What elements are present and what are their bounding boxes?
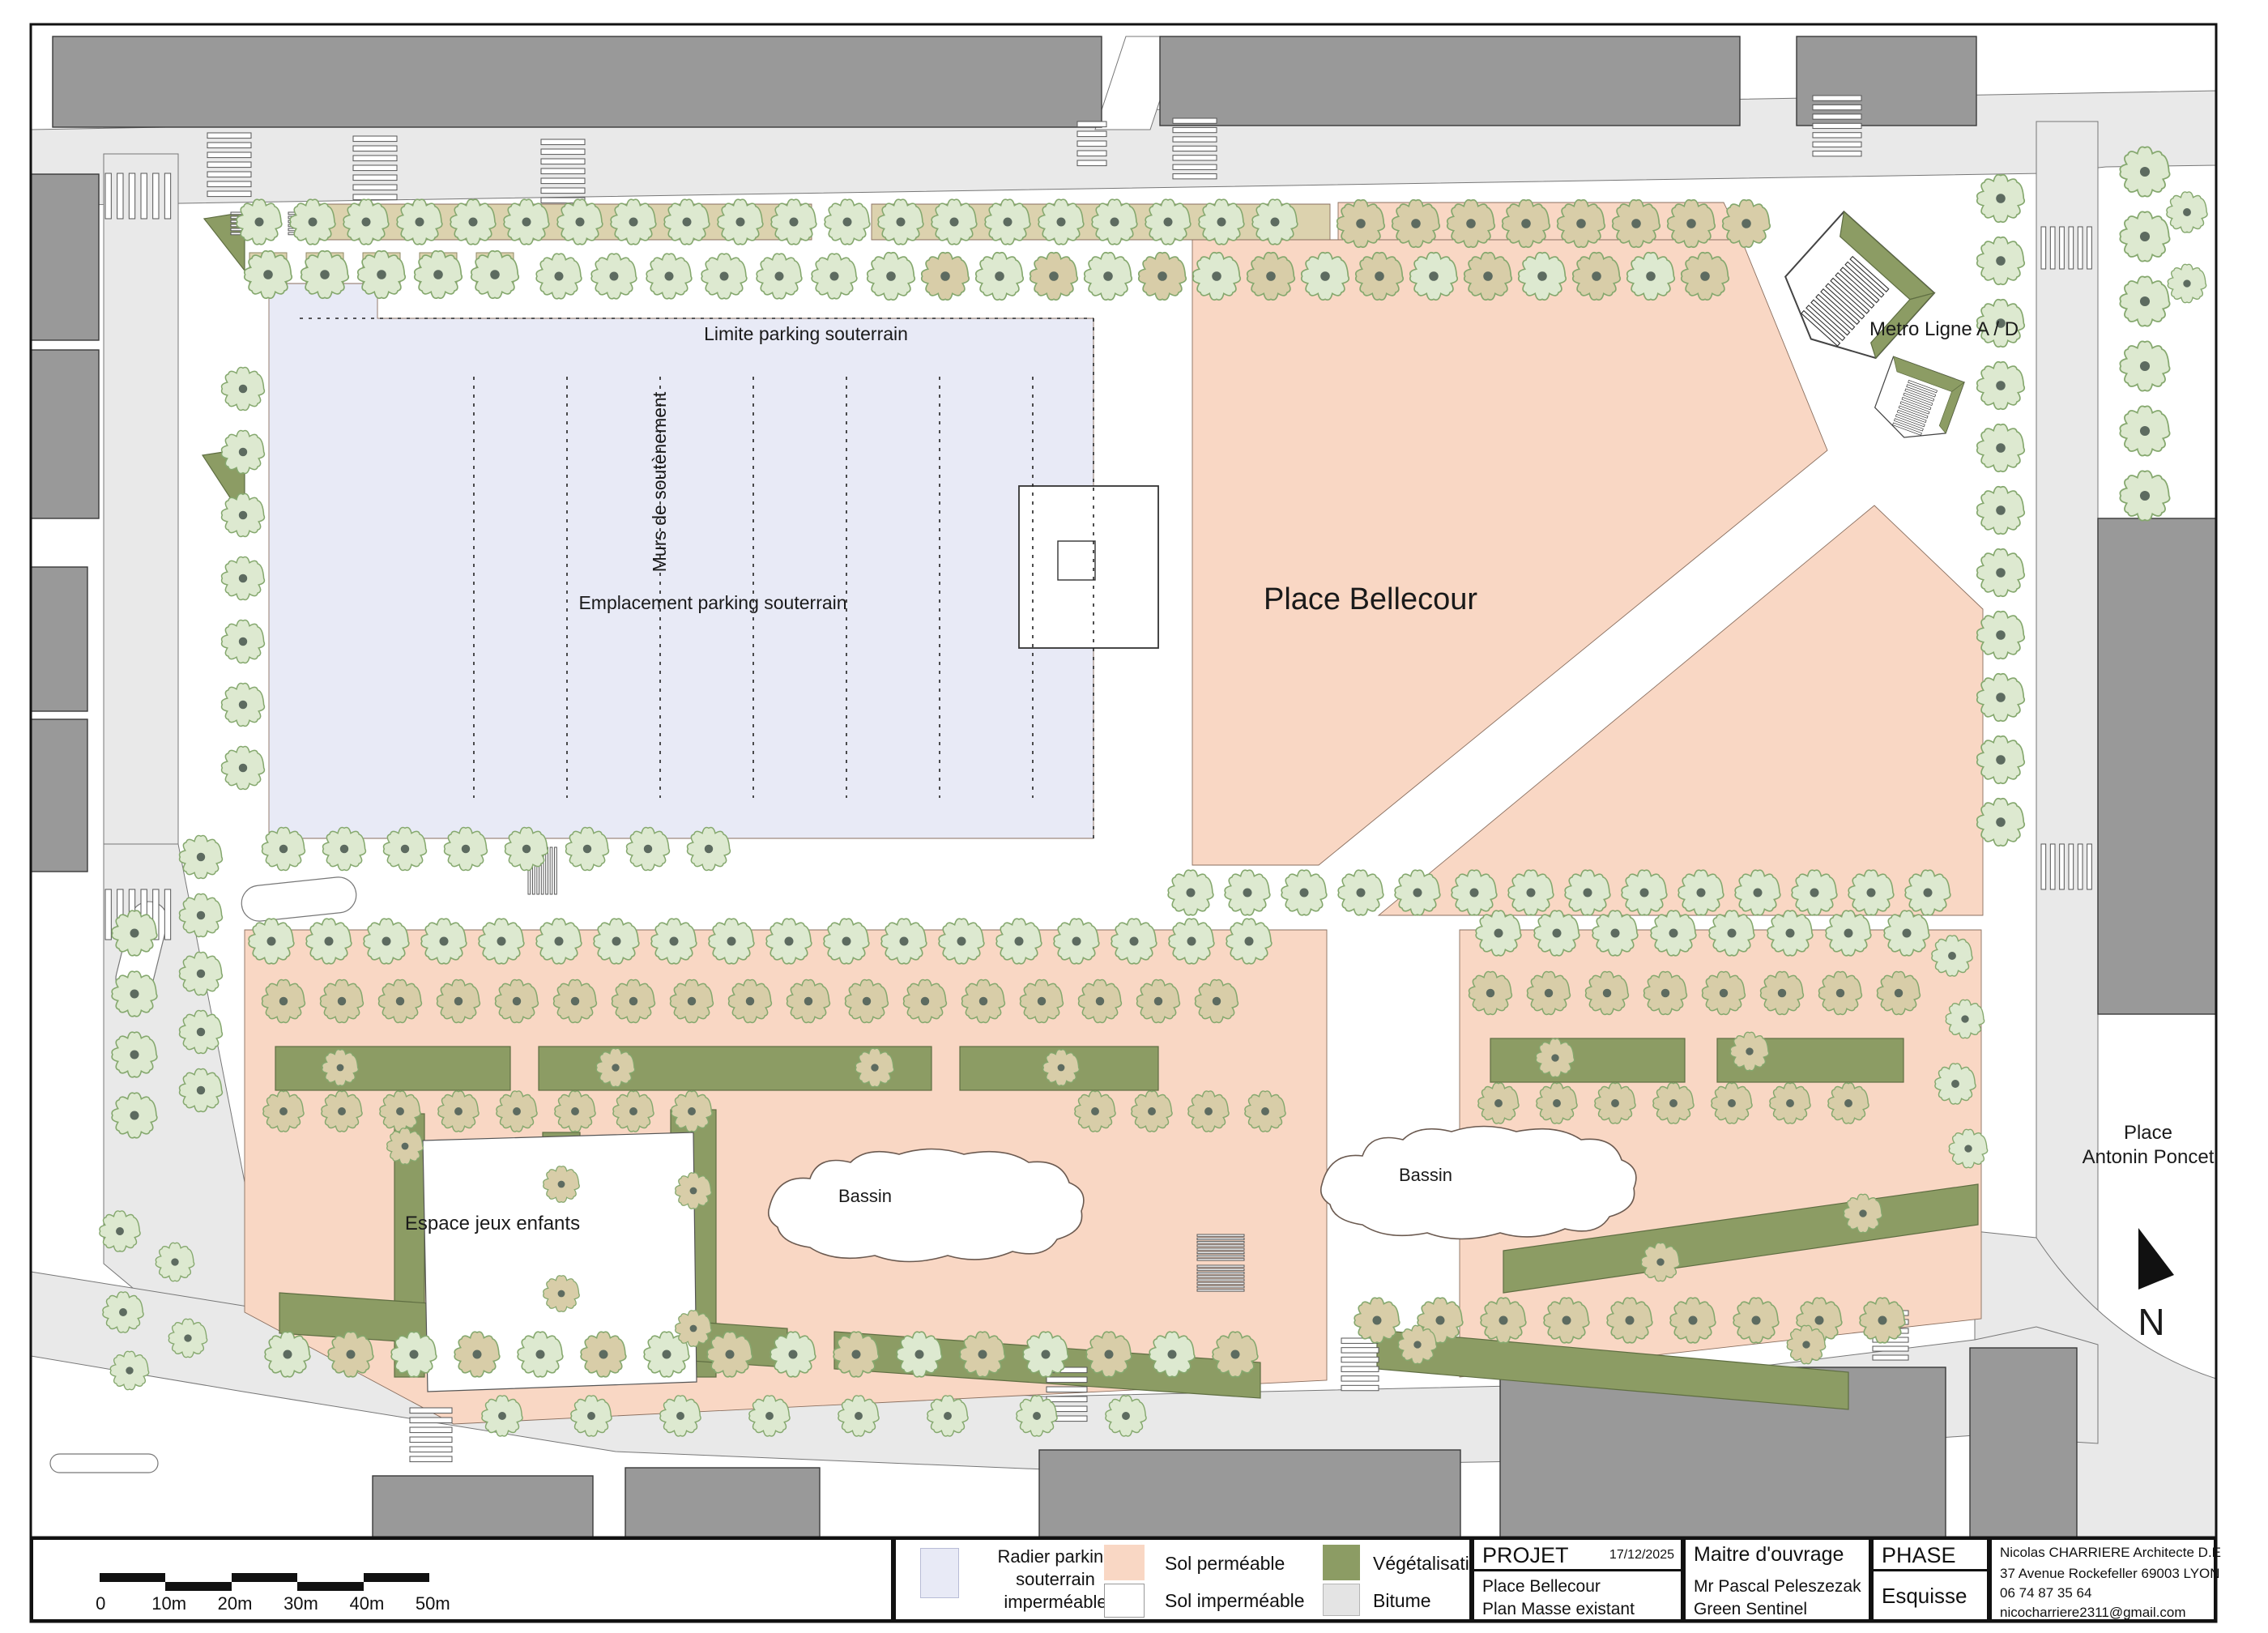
tree-green-icon: [939, 919, 984, 964]
tree-tan-icon: [1544, 1298, 1589, 1343]
maitre-line1: Mr Pascal Peleszezak: [1694, 1577, 1861, 1597]
tree-green-icon: [482, 1396, 522, 1436]
tree-tan-icon: [1139, 253, 1186, 300]
tree-tan-icon: [328, 1332, 373, 1377]
tree-green-icon: [222, 557, 265, 600]
tree-tan-icon: [1733, 1298, 1779, 1343]
tree-tan-icon: [1644, 972, 1687, 1015]
tree-green-icon: [156, 1243, 194, 1281]
projet-header: PROJET: [1482, 1543, 1569, 1568]
tree-green-icon: [384, 828, 427, 871]
tree-tan-icon: [1573, 253, 1620, 300]
tree-green-icon: [1023, 1332, 1068, 1377]
tree-green-icon: [397, 199, 442, 245]
tree-green-icon: [701, 254, 747, 299]
tree-tan-icon: [321, 980, 364, 1023]
label-limite-parking: Limite parking souterrain: [704, 323, 908, 344]
building: [1160, 36, 1740, 126]
surface-lavender: [269, 284, 1093, 838]
tree-tan-icon: [1356, 253, 1403, 300]
tree-green-icon: [2167, 192, 2207, 232]
building: [1039, 1450, 1460, 1537]
tree-green-icon: [222, 684, 265, 727]
tree-tan-icon: [555, 1091, 595, 1132]
crosswalk-hatch: [541, 139, 585, 203]
tree-green-icon: [749, 1396, 790, 1436]
plan-sheet: Limite parking souterrainMurs de soutène…: [0, 0, 2268, 1633]
tree-green-icon: [1017, 1396, 1057, 1436]
building: [1797, 36, 1976, 126]
tree-green-icon: [222, 747, 265, 790]
titleblock-architect: Nicolas CHARRIERE Architecte D.E 37 Aven…: [1989, 1537, 2216, 1622]
tree-green-icon: [1977, 362, 2024, 409]
traffic-island: [50, 1454, 158, 1473]
tree-tan-icon: [855, 1048, 893, 1086]
tree-green-icon: [505, 828, 548, 871]
scalebar-label: 20m: [218, 1593, 253, 1614]
tree-green-icon: [1592, 910, 1638, 956]
architect-line1: Nicolas CHARRIERE Architecte D.E: [2000, 1545, 2221, 1561]
tree-green-icon: [110, 1351, 148, 1389]
maitre-line2: Green Sentinel: [1694, 1600, 1807, 1619]
maitre-header: Maitre d'ouvrage: [1694, 1543, 1844, 1567]
tree-tan-icon: [437, 980, 480, 1023]
tree-tan-icon: [497, 1091, 537, 1132]
tree-green-icon: [364, 919, 409, 964]
tree-tan-icon: [1761, 972, 1804, 1015]
tree-green-icon: [1054, 919, 1099, 964]
building: [1970, 1348, 2077, 1537]
building: [53, 36, 1102, 127]
tree-green-icon: [536, 919, 582, 964]
crosswalk-hatch: [1813, 96, 1861, 156]
tree-green-icon: [2168, 264, 2206, 302]
tree-tan-icon: [960, 1332, 1005, 1377]
legend-swatch-sol-permeable: [1104, 1545, 1145, 1580]
building: [625, 1468, 820, 1537]
tree-tan-icon: [263, 1091, 304, 1132]
hedge-strip: [1490, 1038, 1685, 1082]
tree-green-icon: [2120, 276, 2169, 326]
tree-green-icon: [1410, 253, 1457, 300]
tree-tan-icon: [262, 980, 305, 1023]
legend-label-sol-impermeable: Sol imperméable: [1165, 1590, 1305, 1612]
tree-tan-icon: [544, 1276, 580, 1312]
tree-tan-icon: [1586, 972, 1629, 1015]
label-espace-jeux: Espace jeux enfants: [405, 1213, 580, 1234]
tree-green-icon: [1519, 253, 1566, 300]
tree-green-icon: [1302, 253, 1349, 300]
central-structure: [1019, 486, 1158, 648]
statue-base: [1058, 541, 1095, 580]
tree-green-icon: [1977, 487, 2024, 534]
tree-tan-icon: [1703, 972, 1746, 1015]
tree-tan-icon: [787, 980, 830, 1023]
tree-tan-icon: [1030, 253, 1077, 300]
label-emplacement-parking: Emplacement parking souterrain: [578, 592, 846, 613]
scalebar-segment: [297, 1582, 363, 1591]
tree-green-icon: [1508, 870, 1554, 915]
tree-green-icon: [566, 828, 609, 871]
tree-green-icon: [1826, 910, 1871, 956]
tree-green-icon: [1651, 910, 1696, 956]
tree-green-icon: [222, 368, 265, 411]
tree-tan-icon: [1478, 1083, 1519, 1123]
tree-tan-icon: [1247, 253, 1294, 300]
scalebar-segment: [232, 1573, 297, 1582]
tree-green-icon: [222, 620, 265, 663]
basin: [1321, 1127, 1636, 1239]
tree-green-icon: [1092, 199, 1137, 245]
tree-green-icon: [1149, 1332, 1195, 1377]
tree-tan-icon: [380, 1091, 420, 1132]
tree-green-icon: [1977, 736, 2024, 783]
tree-green-icon: [180, 1069, 223, 1112]
tree-tan-icon: [613, 1091, 654, 1132]
tree-tan-icon: [1021, 980, 1064, 1023]
tree-green-icon: [112, 910, 157, 956]
tree-tan-icon: [581, 1332, 626, 1377]
tree-tan-icon: [1213, 1332, 1258, 1377]
tree-green-icon: [343, 199, 389, 245]
tree-green-icon: [112, 971, 157, 1017]
tree-green-icon: [536, 254, 582, 299]
crosswalk-hatch: [207, 133, 251, 197]
tree-tan-icon: [1137, 980, 1180, 1023]
metro-entrance: [1869, 356, 1964, 450]
tree-green-icon: [1884, 910, 1929, 956]
tree-green-icon: [976, 253, 1023, 300]
crosswalk-hatch: [353, 136, 397, 200]
tree-green-icon: [825, 199, 870, 245]
tree-green-icon: [421, 919, 467, 964]
tree-green-icon: [1678, 870, 1724, 915]
tree-tan-icon: [1464, 253, 1511, 300]
tree-green-icon: [985, 199, 1030, 245]
tree-tan-icon: [1668, 200, 1715, 247]
legend-swatch-sol-impermeable: [1104, 1584, 1145, 1618]
tree-green-icon: [709, 919, 754, 964]
tree-green-icon: [323, 828, 366, 871]
tree-tan-icon: [1447, 200, 1494, 247]
tree-tan-icon: [962, 980, 1005, 1023]
tree-green-icon: [1106, 1396, 1146, 1436]
label-murs-soutenement: Murs de soutènement: [649, 391, 670, 572]
tree-tan-icon: [454, 1332, 500, 1377]
tree-green-icon: [168, 1319, 207, 1357]
architect-line2: 37 Avenue Rockefeller 69003 LYON: [2000, 1566, 2220, 1582]
tree-tan-icon: [1481, 1298, 1526, 1343]
label-north-letter: N: [2138, 1301, 2164, 1343]
tree-tan-icon: [1392, 200, 1439, 247]
tree-green-icon: [1932, 936, 1972, 976]
tree-tan-icon: [1682, 253, 1729, 300]
tree-green-icon: [518, 1332, 563, 1377]
label-place-bellecour: Place Bellecour: [1264, 582, 1477, 616]
tree-tan-icon: [496, 980, 539, 1023]
tree-green-icon: [1199, 199, 1244, 245]
tree-tan-icon: [612, 980, 655, 1023]
tree-green-icon: [479, 919, 524, 964]
tree-green-icon: [1452, 870, 1497, 915]
legend-label-bitume: Bitume: [1373, 1590, 1431, 1612]
label-bassin-ouest: Bassin: [838, 1186, 892, 1206]
tree-tan-icon: [1670, 1298, 1716, 1343]
tree-tan-icon: [671, 1091, 712, 1132]
tree-tan-icon: [1503, 200, 1550, 247]
tree-tan-icon: [846, 980, 889, 1023]
tree-tan-icon: [1595, 1083, 1635, 1123]
scalebar-box: 010m20m30m40m50m: [31, 1537, 893, 1622]
tree-tan-icon: [1079, 980, 1122, 1023]
tree-green-icon: [651, 919, 697, 964]
tree-green-icon: [1145, 199, 1191, 245]
tree-green-icon: [1622, 870, 1667, 915]
legend-box: Radier parking souterrain imperméable So…: [893, 1537, 1472, 1622]
tree-green-icon: [1977, 612, 2024, 659]
tree-green-icon: [1848, 870, 1894, 915]
tree-green-icon: [897, 1332, 942, 1377]
tree-green-icon: [2120, 471, 2169, 520]
tree-tan-icon: [1558, 200, 1605, 247]
building: [31, 350, 99, 518]
tree-green-icon: [2120, 341, 2169, 390]
tree-tan-icon: [833, 1332, 879, 1377]
legend-label-sol-permeable: Sol perméable: [1165, 1553, 1285, 1575]
tree-tan-icon: [1245, 1091, 1285, 1132]
crosswalk-hatch: [1173, 118, 1217, 179]
tree-green-icon: [996, 919, 1042, 964]
tree-tan-icon: [922, 253, 969, 300]
tree-green-icon: [838, 1396, 879, 1436]
tree-tan-icon: [729, 980, 772, 1023]
tree-green-icon: [2120, 211, 2169, 261]
projet-date: 17/12/2025: [1609, 1548, 1674, 1563]
tree-green-icon: [688, 828, 731, 871]
tree-tan-icon: [379, 980, 422, 1023]
tree-tan-icon: [1469, 972, 1512, 1015]
tree-green-icon: [237, 199, 282, 245]
tree-tan-icon: [1641, 1243, 1679, 1281]
tree-green-icon: [1168, 870, 1213, 915]
tree-green-icon: [1935, 1064, 1976, 1104]
scalebar-label: 10m: [151, 1593, 186, 1614]
tree-green-icon: [1085, 253, 1132, 300]
scalebar-segment: [100, 1573, 165, 1582]
tree-green-icon: [1977, 175, 2024, 222]
tree-green-icon: [1038, 199, 1084, 245]
tree-tan-icon: [1844, 1194, 1882, 1232]
building: [2098, 518, 2216, 1014]
tree-tan-icon: [707, 1332, 752, 1377]
tree-tan-icon: [1528, 972, 1571, 1015]
tree-tan-icon: [1730, 1032, 1768, 1070]
tree-tan-icon: [1196, 980, 1238, 1023]
tree-green-icon: [180, 836, 223, 879]
tree-tan-icon: [1770, 1083, 1810, 1123]
tree-green-icon: [881, 919, 927, 964]
tree-green-icon: [1977, 674, 2024, 721]
tree-green-icon: [1946, 1000, 1984, 1038]
label-place-antonin-1: Place: [2124, 1122, 2172, 1144]
tree-green-icon: [660, 1396, 701, 1436]
tree-green-icon: [301, 251, 348, 298]
scalebar-label: 30m: [283, 1593, 318, 1614]
tree-tan-icon: [1653, 1083, 1694, 1123]
tree-green-icon: [718, 199, 763, 245]
tree-tan-icon: [1878, 972, 1921, 1015]
tree-green-icon: [1709, 910, 1754, 956]
tree-tan-icon: [1337, 200, 1384, 247]
tree-green-icon: [180, 953, 223, 996]
metro-entrance: [1766, 211, 1934, 379]
tree-green-icon: [222, 494, 265, 537]
label-metro-ligne: Metro Ligne A / D: [1869, 318, 2019, 340]
tree-green-icon: [1949, 1129, 1987, 1167]
tree-green-icon: [1792, 870, 1837, 915]
traffic-island: [240, 876, 358, 923]
scalebar-label: 0: [96, 1593, 105, 1614]
tree-green-icon: [249, 919, 294, 964]
tree-green-icon: [611, 199, 656, 245]
tree-green-icon: [627, 828, 670, 871]
north-arrow-icon: [2138, 1228, 2174, 1290]
tree-green-icon: [868, 253, 914, 300]
tree-green-icon: [1193, 253, 1240, 300]
tree-green-icon: [1111, 919, 1157, 964]
tree-green-icon: [358, 251, 405, 298]
tree-green-icon: [1252, 199, 1298, 245]
site-plan-drawing: Limite parking souterrainMurs de soutène…: [0, 0, 2268, 1633]
road: [104, 154, 178, 844]
tree-tan-icon: [1398, 1325, 1436, 1363]
tree-green-icon: [1977, 424, 2024, 471]
tree-green-icon: [1395, 870, 1440, 915]
tree-green-icon: [180, 1011, 223, 1054]
tree-green-icon: [290, 199, 335, 245]
tree-green-icon: [646, 254, 692, 299]
tree-green-icon: [824, 919, 869, 964]
architect-line3: 06 74 87 35 64: [2000, 1585, 2091, 1601]
building: [31, 174, 99, 340]
tree-green-icon: [112, 1032, 157, 1077]
tree-green-icon: [415, 251, 462, 298]
tree-tan-icon: [438, 1091, 479, 1132]
tree-green-icon: [1476, 910, 1521, 956]
tree-green-icon: [1977, 237, 2024, 284]
crosswalk-hatch: [1341, 1338, 1379, 1391]
tree-green-icon: [445, 828, 488, 871]
tree-tan-icon: [904, 980, 947, 1023]
projet-line1: Place Bellecour: [1482, 1577, 1601, 1597]
projet-line2: Plan Masse existant: [1482, 1600, 1635, 1619]
building: [373, 1476, 593, 1537]
tree-green-icon: [504, 199, 549, 245]
tree-green-icon: [1977, 799, 2024, 846]
label-place-antonin-2: Antonin Poncet: [2083, 1146, 2215, 1168]
tree-green-icon: [757, 254, 802, 299]
label-bassin-est: Bassin: [1399, 1165, 1452, 1185]
tree-green-icon: [1627, 253, 1674, 300]
legend-swatch-bitume: [1323, 1584, 1360, 1616]
hedge-strip: [275, 1047, 510, 1090]
legend-swatch-vegetalisation: [1323, 1545, 1360, 1580]
tree-green-icon: [1534, 910, 1579, 956]
tree-green-icon: [265, 1332, 310, 1377]
tree-tan-icon: [676, 1311, 712, 1347]
building: [31, 719, 87, 872]
scalebar-label: 40m: [349, 1593, 384, 1614]
tree-tan-icon: [1607, 1298, 1652, 1343]
tree-tan-icon: [1132, 1091, 1172, 1132]
tree-tan-icon: [1712, 1083, 1752, 1123]
building: [31, 567, 87, 711]
scalebar-segment: [165, 1582, 231, 1591]
tree-green-icon: [450, 199, 496, 245]
tree-tan-icon: [1354, 1298, 1400, 1343]
phase-header: PHASE: [1882, 1543, 1956, 1568]
tree-green-icon: [222, 431, 265, 474]
titleblock-projet: PROJET 17/12/2025 Place Bellecour Plan M…: [1472, 1537, 1683, 1622]
tree-tan-icon: [596, 1048, 634, 1086]
tree-tan-icon: [1086, 1332, 1132, 1377]
tree-green-icon: [1225, 870, 1270, 915]
tree-green-icon: [112, 1093, 157, 1138]
tree-tan-icon: [1536, 1038, 1574, 1077]
phase-value: Esquisse: [1882, 1584, 1967, 1609]
tree-green-icon: [1226, 919, 1272, 964]
tree-green-icon: [812, 254, 857, 299]
tree-green-icon: [594, 919, 639, 964]
scalebar-label: 50m: [416, 1593, 450, 1614]
tree-green-icon: [770, 1332, 816, 1377]
tree-green-icon: [180, 894, 223, 937]
tree-green-icon: [927, 1396, 968, 1436]
tree-tan-icon: [1188, 1091, 1229, 1132]
tree-green-icon: [591, 254, 637, 299]
tree-green-icon: [878, 199, 923, 245]
tree-green-icon: [664, 199, 710, 245]
tree-green-icon: [1281, 870, 1327, 915]
tree-green-icon: [1767, 910, 1813, 956]
tree-tan-icon: [1613, 200, 1660, 247]
legend-swatch-radier: [920, 1548, 959, 1598]
tree-green-icon: [571, 1396, 612, 1436]
tree-green-icon: [557, 199, 603, 245]
tree-green-icon: [262, 828, 305, 871]
tree-green-icon: [391, 1332, 437, 1377]
tree-green-icon: [771, 199, 816, 245]
tree-green-icon: [1905, 870, 1950, 915]
tree-green-icon: [932, 199, 977, 245]
tree-green-icon: [1735, 870, 1780, 915]
tree-green-icon: [1977, 549, 2024, 596]
tree-tan-icon: [1828, 1083, 1869, 1123]
titleblock-maitre: Maitre d'ouvrage Mr Pascal Peleszezak Gr…: [1683, 1537, 1871, 1622]
tree-green-icon: [245, 251, 292, 298]
tree-tan-icon: [1819, 972, 1862, 1015]
tree-green-icon: [1169, 919, 1214, 964]
tree-tan-icon: [1537, 1083, 1577, 1123]
tree-tan-icon: [1860, 1298, 1905, 1343]
titleblock-phase: PHASE Esquisse: [1871, 1537, 1989, 1622]
tree-green-icon: [1565, 870, 1610, 915]
tree-tan-icon: [322, 1091, 362, 1132]
tree-green-icon: [103, 1292, 143, 1332]
tree-green-icon: [766, 919, 812, 964]
tree-tan-icon: [554, 980, 597, 1023]
tree-green-icon: [306, 919, 352, 964]
